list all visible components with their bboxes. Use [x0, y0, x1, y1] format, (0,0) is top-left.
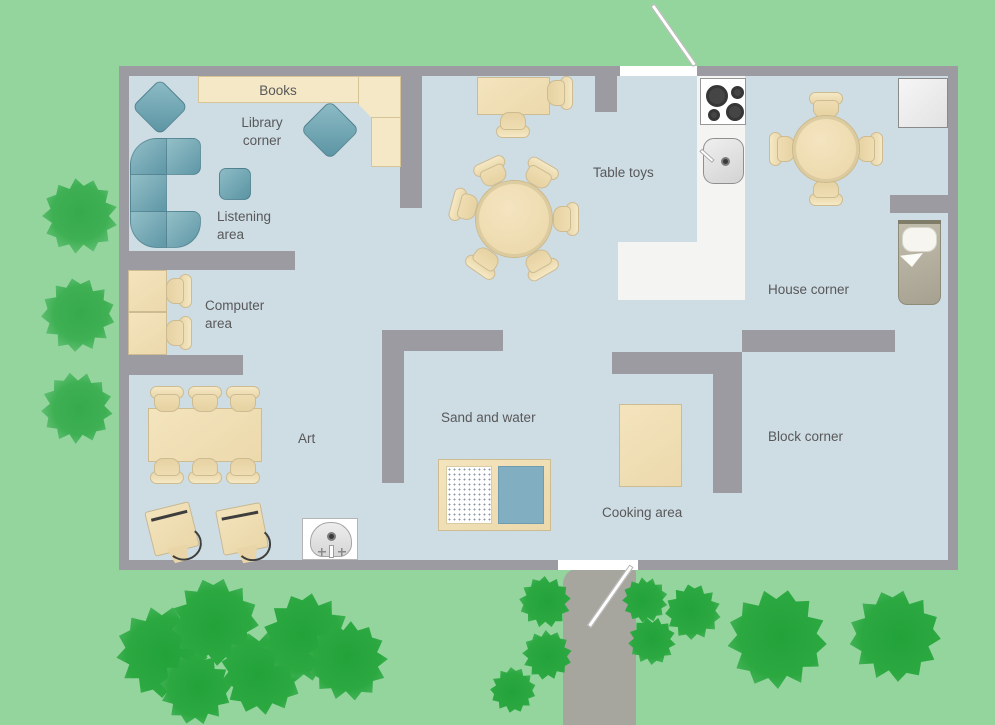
sofa-seat	[166, 138, 201, 175]
floor-plan-canvas: Books Library corner Listening area Comp…	[0, 0, 995, 725]
wall-computer	[129, 355, 243, 375]
area-label-computer-area: Computer area	[205, 297, 264, 332]
computer-desk	[128, 312, 167, 355]
chair	[149, 386, 185, 412]
chair	[495, 112, 531, 138]
area-label-block-corner: Block corner	[768, 428, 843, 446]
round-table	[792, 115, 860, 183]
chair	[547, 75, 573, 111]
chair	[187, 458, 223, 484]
area-label-art: Art	[298, 430, 315, 448]
chair	[225, 458, 261, 484]
chair	[166, 315, 192, 351]
computer-desk	[128, 270, 167, 312]
easel	[215, 502, 269, 556]
stove	[700, 78, 746, 125]
area-label-cooking-area: Cooking area	[602, 504, 682, 522]
sofa-seat	[130, 174, 167, 212]
bookshelf	[371, 117, 401, 167]
bed	[898, 222, 941, 305]
cooking-table	[619, 404, 682, 487]
chair	[857, 131, 883, 167]
sink	[302, 518, 358, 560]
wall-listening	[129, 251, 295, 270]
art-table	[148, 408, 262, 462]
area-label-listening-area: Listening area	[217, 208, 271, 243]
wall-top-stub	[595, 76, 617, 112]
wall-sand-h	[382, 330, 503, 351]
square-table	[477, 77, 550, 115]
tree	[716, 578, 838, 700]
chair	[187, 386, 223, 412]
tree	[26, 263, 130, 367]
tree	[42, 178, 118, 254]
chair	[166, 273, 192, 309]
area-label-books: Books	[236, 82, 320, 100]
wall-block-h	[742, 330, 895, 352]
chair	[808, 180, 844, 206]
area-label-library-corner: Library corner	[214, 114, 310, 149]
wall-block-v	[713, 374, 742, 493]
chair	[225, 386, 261, 412]
water-tray	[498, 466, 544, 524]
cabinet	[898, 78, 948, 128]
door-opening-top	[620, 66, 697, 76]
chair	[553, 201, 579, 237]
wall-sand-v	[382, 351, 404, 483]
area-label-table-toys: Table toys	[593, 164, 654, 182]
round-table	[475, 180, 553, 258]
door-leaf-top	[650, 4, 697, 67]
area-label-house-corner: House corner	[768, 281, 849, 299]
kitchen-floor	[618, 242, 697, 300]
tree	[830, 571, 959, 700]
chair	[149, 458, 185, 484]
wall-bed-stub	[890, 195, 948, 213]
tree	[32, 363, 121, 452]
area-label-sand-and-water: Sand and water	[441, 409, 536, 427]
entrance-path	[563, 568, 636, 725]
wall-cooking-h	[612, 352, 742, 374]
wall-library-divider	[400, 76, 422, 208]
kitchen-sink	[703, 138, 744, 184]
sand-tray	[446, 466, 492, 524]
floor-cushion	[219, 168, 251, 200]
